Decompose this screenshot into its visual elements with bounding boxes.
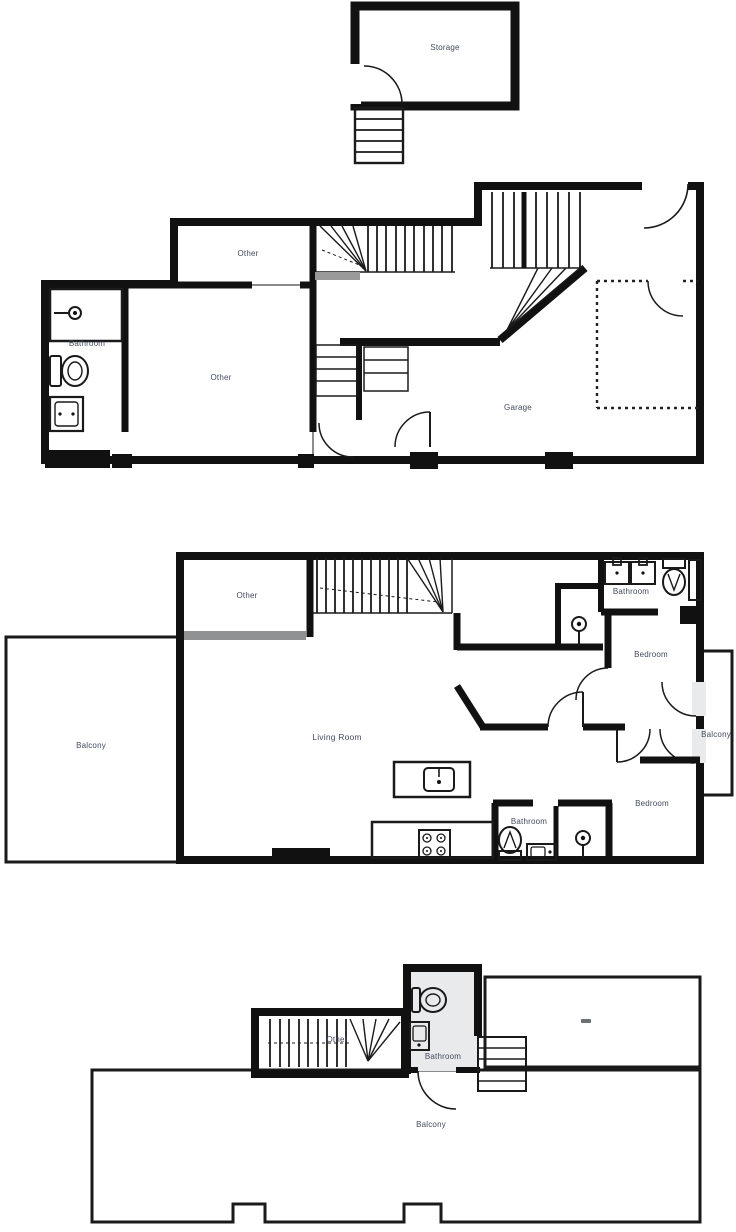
toilet-icon	[50, 356, 88, 386]
room-label-balcony-right: Balcony	[701, 730, 731, 739]
stairs	[315, 226, 455, 280]
room-label-bedroom-top: Bedroom	[634, 650, 668, 659]
room-label-storage: Storage	[430, 43, 460, 52]
door-arc-icon	[548, 692, 583, 727]
stair-landing	[315, 272, 360, 280]
room-label-bathroom: Bathroom	[425, 1052, 461, 1061]
floorplan-ground: Other Bathroom Other Garage	[45, 179, 700, 469]
vanity-double-sink-icon	[605, 558, 655, 584]
room-label-living-room: Living Room	[312, 732, 361, 742]
kitchen-counter	[372, 822, 493, 858]
room-label-bathroom: Bathroom	[69, 339, 105, 348]
exterior-walls	[45, 186, 700, 460]
stove-icon	[419, 830, 450, 858]
shower-icon	[572, 617, 586, 646]
room-label-bedroom-bottom: Bedroom	[635, 799, 669, 808]
room-label-other: Other	[236, 591, 257, 600]
door-arc-icon	[395, 412, 430, 447]
shower-icon	[50, 289, 122, 341]
floorplan-drawing: Storage	[0, 0, 736, 1232]
door-arc-icon	[576, 668, 608, 700]
room-label-other-main: Other	[210, 373, 231, 382]
garage-parking-outline	[597, 281, 698, 408]
tiny-annotation-mark	[581, 1019, 591, 1023]
door-arc-icon	[418, 1071, 456, 1109]
sink-icon	[50, 397, 83, 431]
floorplan-page: Storage	[0, 0, 736, 1232]
roof-terrace-main	[92, 1070, 700, 1222]
door-arc-icon	[319, 423, 353, 457]
room-label-garage: Garage	[504, 403, 532, 412]
floorplan-main: Other Balcony Living Room Bathroom Bedro…	[6, 556, 732, 862]
door-arc-icon	[364, 66, 402, 104]
stairs	[313, 558, 452, 613]
diagonal-wall	[457, 686, 483, 727]
floorplan-storage: Storage	[348, 6, 515, 163]
diagonal-wall	[500, 268, 585, 340]
toilet-icon	[663, 559, 685, 595]
door-arc-icon	[662, 682, 696, 716]
toilet-icon	[499, 827, 521, 860]
glass-partition	[184, 631, 306, 640]
kitchen-island	[394, 762, 470, 797]
shower-icon	[576, 831, 590, 858]
room-label-bathroom-top: Bathroom	[613, 587, 649, 596]
balcony-right	[700, 651, 732, 795]
door-opening	[348, 64, 361, 104]
room-label-bathroom-bottom: Bathroom	[511, 817, 547, 826]
room-label-balcony-left: Balcony	[76, 741, 106, 750]
floorplan-roof: Other Bathroom Balcony	[92, 968, 700, 1222]
room-label-other-top: Other	[237, 249, 258, 258]
room-label-other: Other	[326, 1035, 347, 1044]
roof-terrace-upper	[485, 977, 700, 1067]
stairs	[355, 108, 403, 163]
door-arc-icon	[648, 281, 683, 316]
room-label-balcony: Balcony	[416, 1120, 446, 1129]
